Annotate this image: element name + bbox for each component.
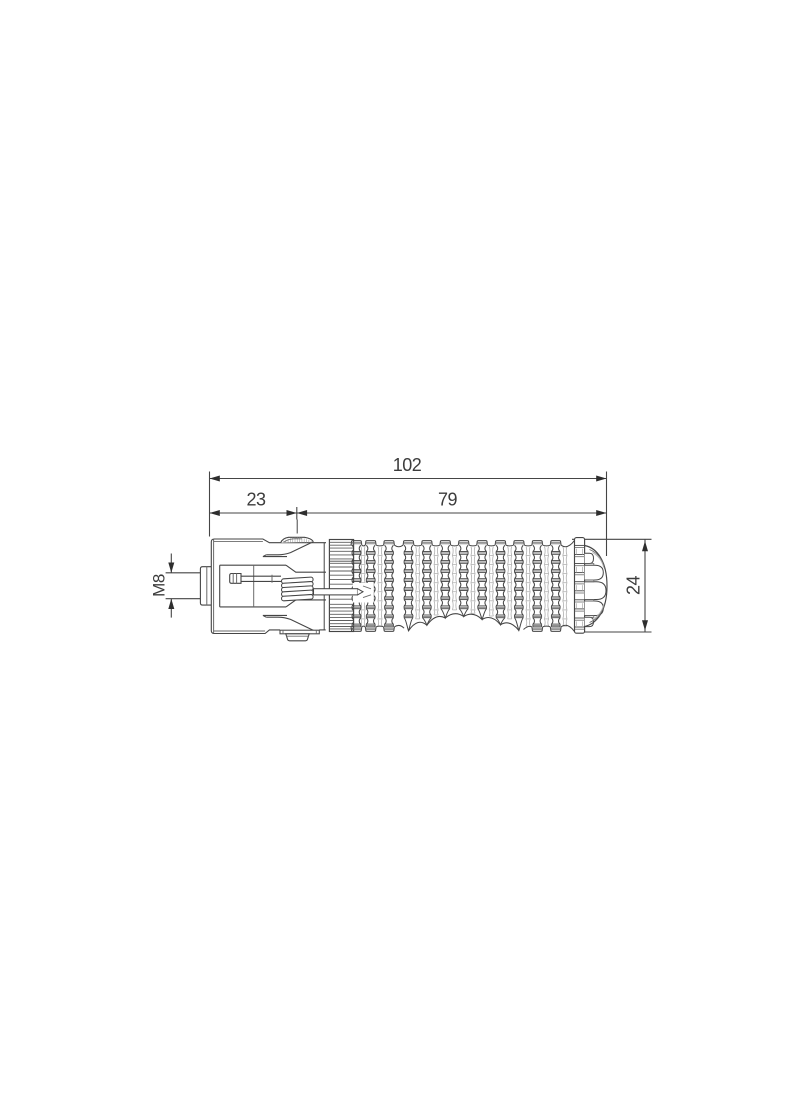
svg-text:79: 79 bbox=[438, 490, 458, 510]
svg-text:23: 23 bbox=[246, 490, 266, 510]
svg-text:102: 102 bbox=[393, 455, 422, 475]
svg-text:M8: M8 bbox=[150, 574, 169, 597]
svg-text:24: 24 bbox=[624, 576, 644, 596]
